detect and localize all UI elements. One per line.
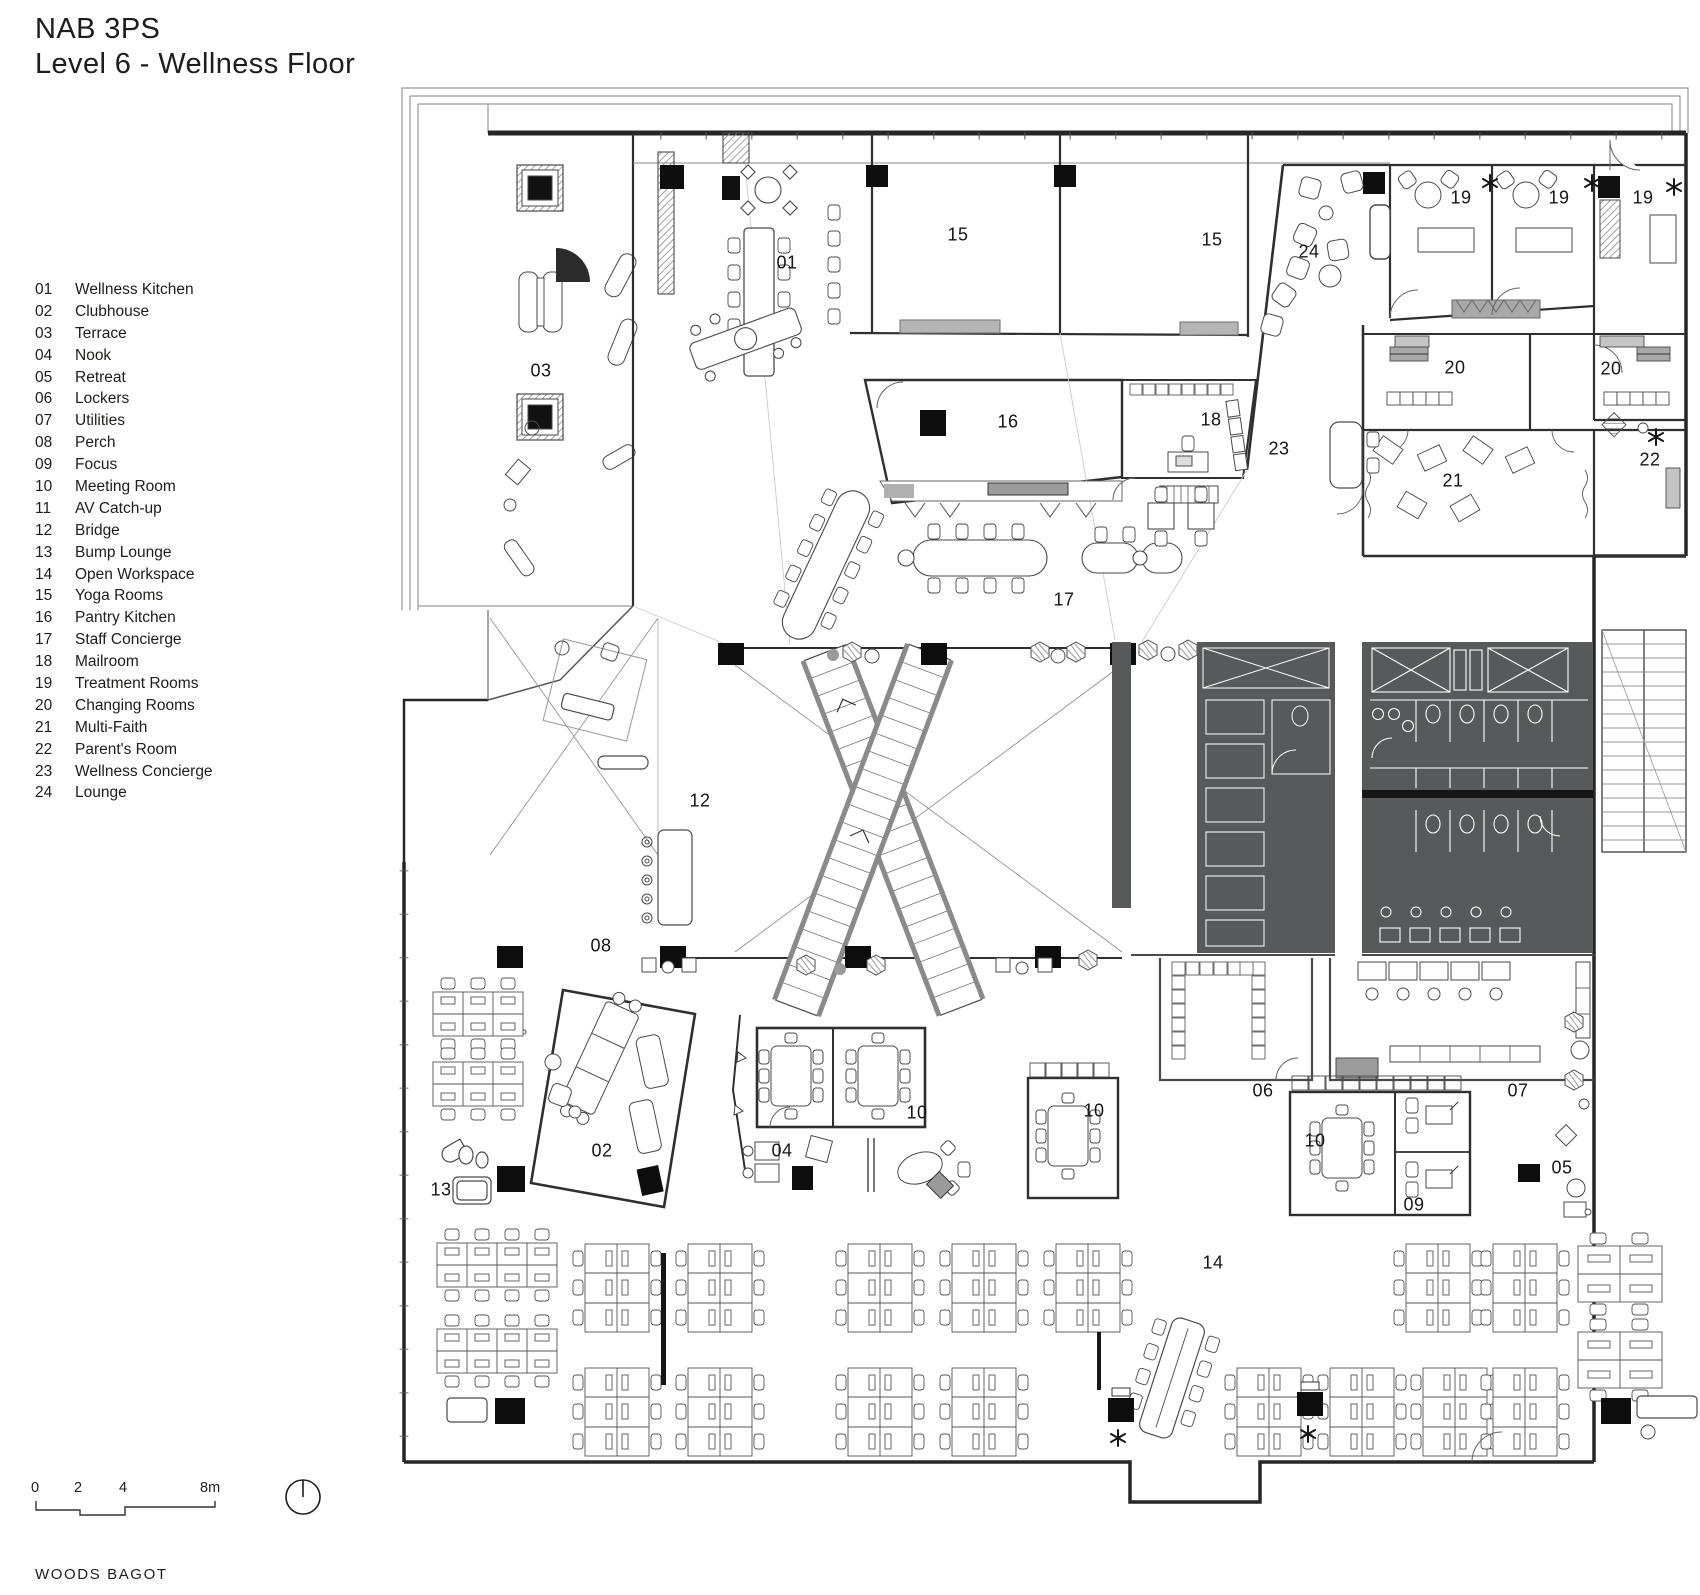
room-number-label-22: 22 [1639, 450, 1660, 471]
legend-item-09: 09Focus [35, 454, 213, 476]
room-number-label-14: 14 [1202, 1253, 1223, 1274]
legend-item-05: 05Retreat [35, 367, 213, 389]
room-number-label-17: 17 [1053, 590, 1074, 611]
core-right [1362, 642, 1593, 953]
legend-number: 15 [35, 585, 62, 607]
legend-number: 04 [35, 345, 62, 367]
scale-tick-0: 0 [31, 1480, 39, 1496]
scale-tick-8m: 8m [200, 1480, 220, 1496]
room-number-label-20: 20 [1444, 358, 1465, 379]
legend-number: 16 [35, 607, 62, 629]
room-number-label-12: 12 [689, 791, 710, 812]
legend-label: Terrace [62, 323, 127, 345]
bump-lounge-13 [439, 1139, 525, 1204]
legend-number: 10 [35, 476, 62, 498]
legend-number: 03 [35, 323, 62, 345]
legend-item-21: 21Multi-Faith [35, 717, 213, 739]
legend-number: 07 [35, 410, 62, 432]
legend-number: 18 [35, 651, 62, 673]
open-workspace-14 [437, 1229, 1697, 1462]
legend-item-14: 14Open Workspace [35, 564, 213, 586]
legend-number: 22 [35, 739, 62, 761]
legend-item-10: 10Meeting Room [35, 476, 213, 498]
room-number-label-10: 10 [1083, 1101, 1104, 1122]
room-number-label-15: 15 [947, 225, 968, 246]
legend-number: 11 [35, 498, 62, 520]
legend-number: 08 [35, 432, 62, 454]
room-number-label-04: 04 [771, 1141, 792, 1162]
legend-number: 02 [35, 301, 62, 323]
east-stair [1602, 630, 1686, 852]
project-title: NAB 3PS [35, 12, 355, 47]
legend-item-01: 01Wellness Kitchen [35, 279, 213, 301]
legend-label: AV Catch-up [62, 498, 162, 520]
room-number-label-08: 08 [590, 936, 611, 957]
legend-item-13: 13Bump Lounge [35, 542, 213, 564]
legend-item-08: 08Perch [35, 432, 213, 454]
legend-label: Pantry Kitchen [62, 607, 176, 629]
legend-label: Staff Concierge [62, 629, 182, 651]
changing-rooms-furniture [1330, 336, 1680, 522]
room-number-label-02: 02 [591, 1141, 612, 1162]
clubhouse-02 [522, 989, 695, 1207]
legend-label: Multi-Faith [62, 717, 147, 739]
legend-label: Clubhouse [62, 301, 149, 323]
legend-number: 01 [35, 279, 62, 301]
legend-label: Retreat [62, 367, 126, 389]
legend-label: Perch [62, 432, 116, 454]
legend-item-22: 22Parent's Room [35, 739, 213, 761]
scale-bar [36, 1501, 215, 1515]
room-number-label-19: 19 [1632, 188, 1653, 209]
room-number-label-16: 16 [997, 412, 1018, 433]
room-number-label-03: 03 [530, 361, 551, 382]
legend-label: Open Workspace [62, 564, 194, 586]
room-number-label-06: 06 [1252, 1081, 1273, 1102]
legend-item-15: 15Yoga Rooms [35, 585, 213, 607]
title-block: NAB 3PS Level 6 - Wellness Floor [35, 12, 355, 82]
legend-label: Treatment Rooms [62, 673, 198, 695]
room-number-label-09: 09 [1403, 1195, 1424, 1216]
room-number-label-15: 15 [1201, 230, 1222, 251]
room-number-label-23: 23 [1268, 439, 1289, 460]
legend-label: Parent's Room [62, 739, 177, 761]
core-left [1112, 642, 1335, 953]
room-number-label-21: 21 [1442, 471, 1463, 492]
legend-item-06: 06Lockers [35, 388, 213, 410]
sheet: NAB 3PS Level 6 - Wellness Floor 01Welln… [0, 0, 1700, 1595]
scale-tick-2: 2 [74, 1480, 82, 1496]
legend-number: 21 [35, 717, 62, 739]
legend-label: Mailroom [62, 651, 139, 673]
legend-item-23: 23Wellness Concierge [35, 761, 213, 783]
floor-plan-drawing [0, 0, 1700, 1595]
legend-label: Bump Lounge [62, 542, 172, 564]
legend-item-03: 03Terrace [35, 323, 213, 345]
legend-item-11: 11AV Catch-up [35, 498, 213, 520]
utilities-07 [1330, 955, 1594, 1080]
legend-number: 09 [35, 454, 62, 476]
terrace-furniture [502, 165, 639, 578]
lockers-06 [1131, 955, 1335, 1080]
legend-number: 13 [35, 542, 62, 564]
legend-number: 05 [35, 367, 62, 389]
legend-label: Wellness Concierge [62, 761, 213, 783]
room-number-label-19: 19 [1450, 188, 1471, 209]
legend-number: 24 [35, 782, 62, 804]
legend-item-20: 20Changing Rooms [35, 695, 213, 717]
legend-item-19: 19Treatment Rooms [35, 673, 213, 695]
legend-label: Meeting Room [62, 476, 176, 498]
legend-item-17: 17Staff Concierge [35, 629, 213, 651]
legend-label: Wellness Kitchen [62, 279, 194, 301]
legend-number: 06 [35, 388, 62, 410]
legend-number: 19 [35, 673, 62, 695]
scale-tick-4: 4 [119, 1480, 127, 1496]
legend-number: 12 [35, 520, 62, 542]
wellness-kitchen-furniture [658, 133, 1238, 386]
legend-item-02: 02Clubhouse [35, 301, 213, 323]
room-number-label-07: 07 [1507, 1081, 1528, 1102]
terrace-band [402, 88, 1688, 610]
room-number-label-05: 05 [1551, 1158, 1572, 1179]
staff-concierge-furniture [763, 479, 1214, 651]
legend-item-04: 04Nook [35, 345, 213, 367]
legend-number: 14 [35, 564, 62, 586]
firm-logo: WOODS BAGOT [35, 1566, 168, 1583]
legend-label: Focus [62, 454, 117, 476]
room-number-label-18: 18 [1200, 410, 1221, 431]
room-number-label-10: 10 [906, 1103, 927, 1124]
room-number-label-13: 13 [430, 1180, 451, 1201]
legend-number: 23 [35, 761, 62, 783]
legend-label: Changing Rooms [62, 695, 195, 717]
room-number-label-24: 24 [1298, 242, 1319, 263]
legend-label: Utilities [62, 410, 125, 432]
room-number-label-01: 01 [776, 253, 797, 274]
legend-label: Nook [62, 345, 111, 367]
legend-label: Lounge [62, 782, 127, 804]
legend-number: 17 [35, 629, 62, 651]
legend-label: Bridge [62, 520, 120, 542]
room-number-label-20: 20 [1600, 359, 1621, 380]
legend-item-07: 07Utilities [35, 410, 213, 432]
retreat-05 [1555, 1012, 1591, 1217]
sheet-title: Level 6 - Wellness Floor [35, 47, 355, 82]
legend-label: Lockers [62, 388, 129, 410]
legend-number: 20 [35, 695, 62, 717]
legend-item-18: 18Mailroom [35, 651, 213, 673]
north-arrow [286, 1480, 320, 1514]
legend-item-16: 16Pantry Kitchen [35, 607, 213, 629]
room-number-label-10: 10 [1304, 1131, 1325, 1152]
pantry-mailroom [877, 382, 1248, 517]
room-number-label-19: 19 [1548, 188, 1569, 209]
bridge-perch [543, 639, 692, 925]
legend-item-12: 12Bridge [35, 520, 213, 542]
legend-list: 01Wellness Kitchen02Clubhouse03Terrace04… [35, 279, 213, 804]
legend-item-24: 24Lounge [35, 782, 213, 804]
legend-label: Yoga Rooms [62, 585, 163, 607]
